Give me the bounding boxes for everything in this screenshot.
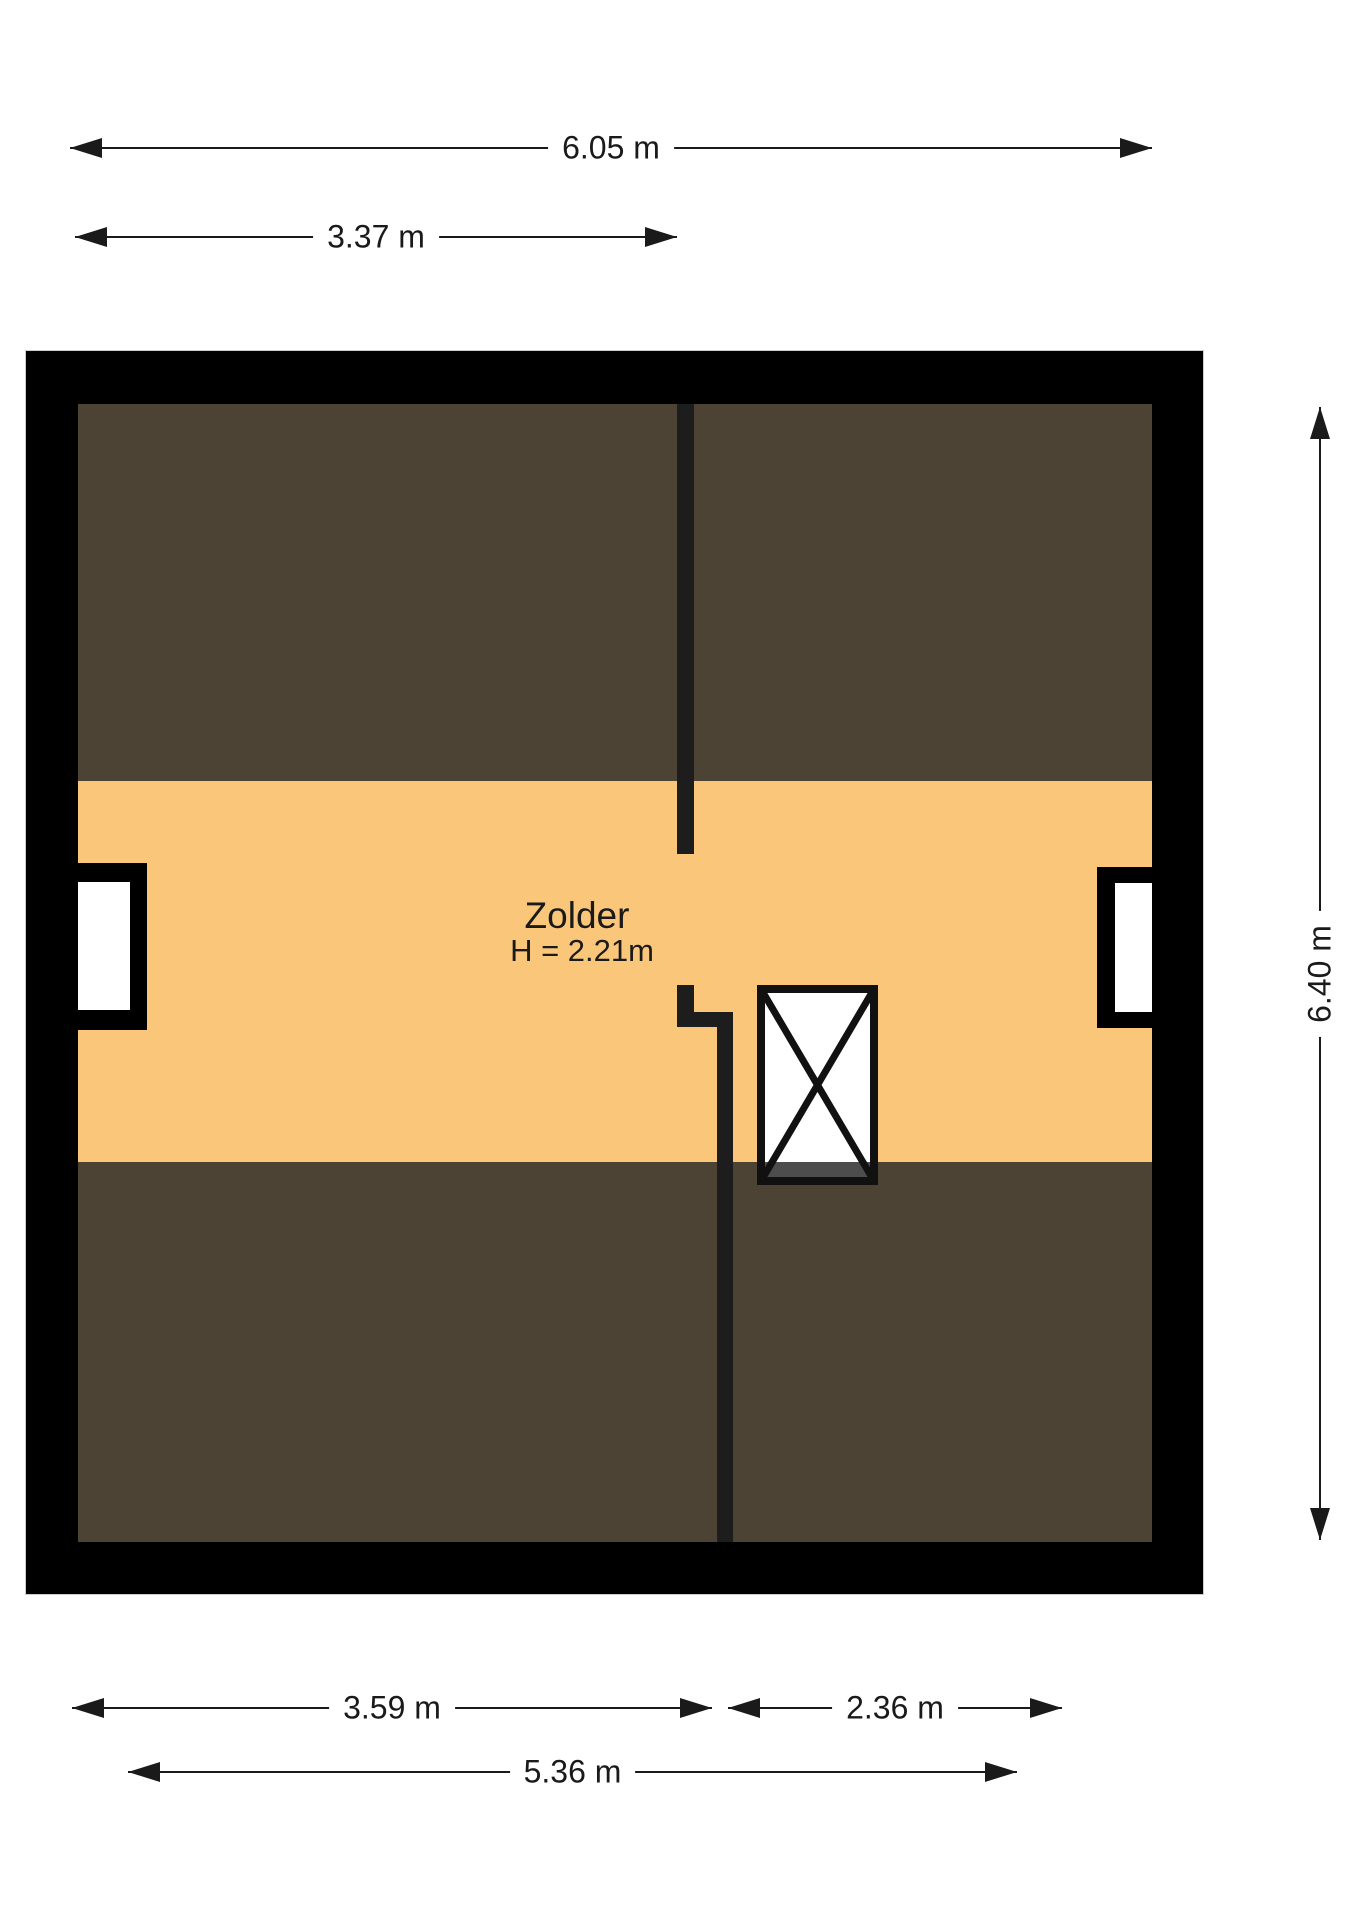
arrowhead-left-icon — [72, 1698, 104, 1718]
staircase — [757, 985, 878, 1185]
dimension-label-bottom-right: 2.36 m — [832, 1688, 958, 1727]
arrowhead-right-icon — [1120, 138, 1152, 158]
window-right-opening — [1115, 883, 1152, 1012]
arrowhead-right-icon — [645, 227, 677, 247]
arrowhead-down-icon — [1310, 1508, 1330, 1540]
dimension-label-bottom-overall: 5.36 m — [510, 1752, 636, 1791]
room-height-label: H = 2.21m — [510, 933, 654, 969]
arrowhead-left-icon — [70, 138, 102, 158]
sloped-roof-area-bottom — [78, 1162, 1152, 1542]
arrowhead-up-icon — [1310, 407, 1330, 439]
arrowhead-left-icon — [128, 1762, 160, 1782]
window-left-opening — [78, 882, 130, 1010]
room-name-label: Zolder — [525, 895, 630, 937]
floor-plan-page: 6.05 m 3.37 m Zolder H = 2.21m 6.40 m — [0, 0, 1358, 1920]
interior-wall-top-divider — [677, 404, 694, 854]
arrowhead-right-icon — [1030, 1698, 1062, 1718]
arrowhead-left-icon — [728, 1698, 760, 1718]
staircase-under-floor-shade — [765, 1162, 870, 1177]
dimension-label-right-vertical: 6.40 m — [1300, 911, 1339, 1037]
dimension-label-top-outer: 6.05 m — [548, 128, 674, 167]
sloped-roof-area-top — [78, 404, 1152, 781]
arrowhead-left-icon — [75, 227, 107, 247]
arrowhead-right-icon — [985, 1762, 1017, 1782]
dimension-label-top-inner: 3.37 m — [313, 217, 439, 256]
room-zolder-floor — [78, 781, 1152, 1162]
arrowhead-right-icon — [680, 1698, 712, 1718]
dimension-label-bottom-left: 3.59 m — [329, 1688, 455, 1727]
interior-wall-bottom-divider — [717, 1012, 733, 1542]
